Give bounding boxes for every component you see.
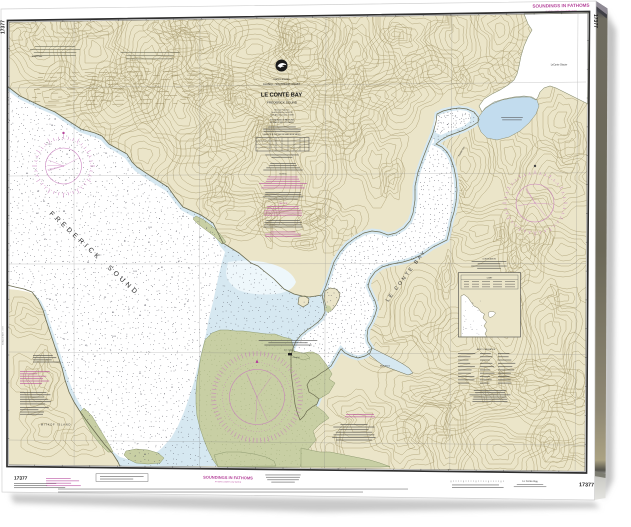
svg-text:NOAA CHART 17377: NOAA CHART 17377 <box>2 325 5 345</box>
svg-text:ALASKA – SOUTHEAST COAST: ALASKA – SOUTHEAST COAST <box>263 83 300 86</box>
svg-text:FREDERICK SOUND: FREDERICK SOUND <box>267 101 298 105</box>
svg-text:LIGHT: LIGHT <box>487 277 493 279</box>
svg-text:Bluff Point: Bluff Point <box>380 365 390 368</box>
svg-text:MITKOF ISLAND: MITKOF ISLAND <box>41 423 71 427</box>
svg-text:AT MEAN LOWER LOW WATER: AT MEAN LOWER LOW WATER <box>215 480 242 483</box>
svg-text:CAUTION: CAUTION <box>279 202 288 205</box>
svg-text:SOUNDINGS IN FATHOMS: SOUNDINGS IN FATHOMS <box>270 118 295 121</box>
svg-text:17377: 17377 <box>1 20 7 34</box>
svg-text:SOUNDINGS IN FATHOMS: SOUNDINGS IN FATHOMS <box>532 3 589 9</box>
svg-text:SOUNDINGS IN FATHOMS: SOUNDINGS IN FATHOMS <box>203 475 253 481</box>
svg-text:North American Datum of 1983: North American Datum of 1983 <box>270 113 293 116</box>
svg-text:Le Conte Bay: Le Conte Bay <box>522 479 538 483</box>
svg-text:LE CONTE BAY: LE CONTE BAY <box>261 93 302 99</box>
svg-text:CONTINUATION: CONTINUATION <box>482 258 496 261</box>
svg-text:Camp Isl: Camp Isl <box>292 357 300 359</box>
svg-text:NOTE A: NOTE A <box>280 173 288 176</box>
svg-text:17377: 17377 <box>579 482 594 488</box>
svg-text:Blind Point: Blind Point <box>32 55 43 58</box>
svg-text:17377: 17377 <box>592 14 598 28</box>
svg-text:(see note): (see note) <box>284 349 292 352</box>
svg-text:AIDS TO NAVIGATION: AIDS TO NAVIGATION <box>477 348 496 351</box>
svg-text:HEIGHTS IN FEET ABOVE MEAN HIG: HEIGHTS IN FEET ABOVE MEAN HIGH WATER <box>263 133 301 136</box>
svg-text:LeConte Glacier: LeConte Glacier <box>551 64 568 67</box>
svg-text:UNITED STATES: UNITED STATES <box>273 78 290 81</box>
svg-text:17377: 17377 <box>14 476 28 482</box>
